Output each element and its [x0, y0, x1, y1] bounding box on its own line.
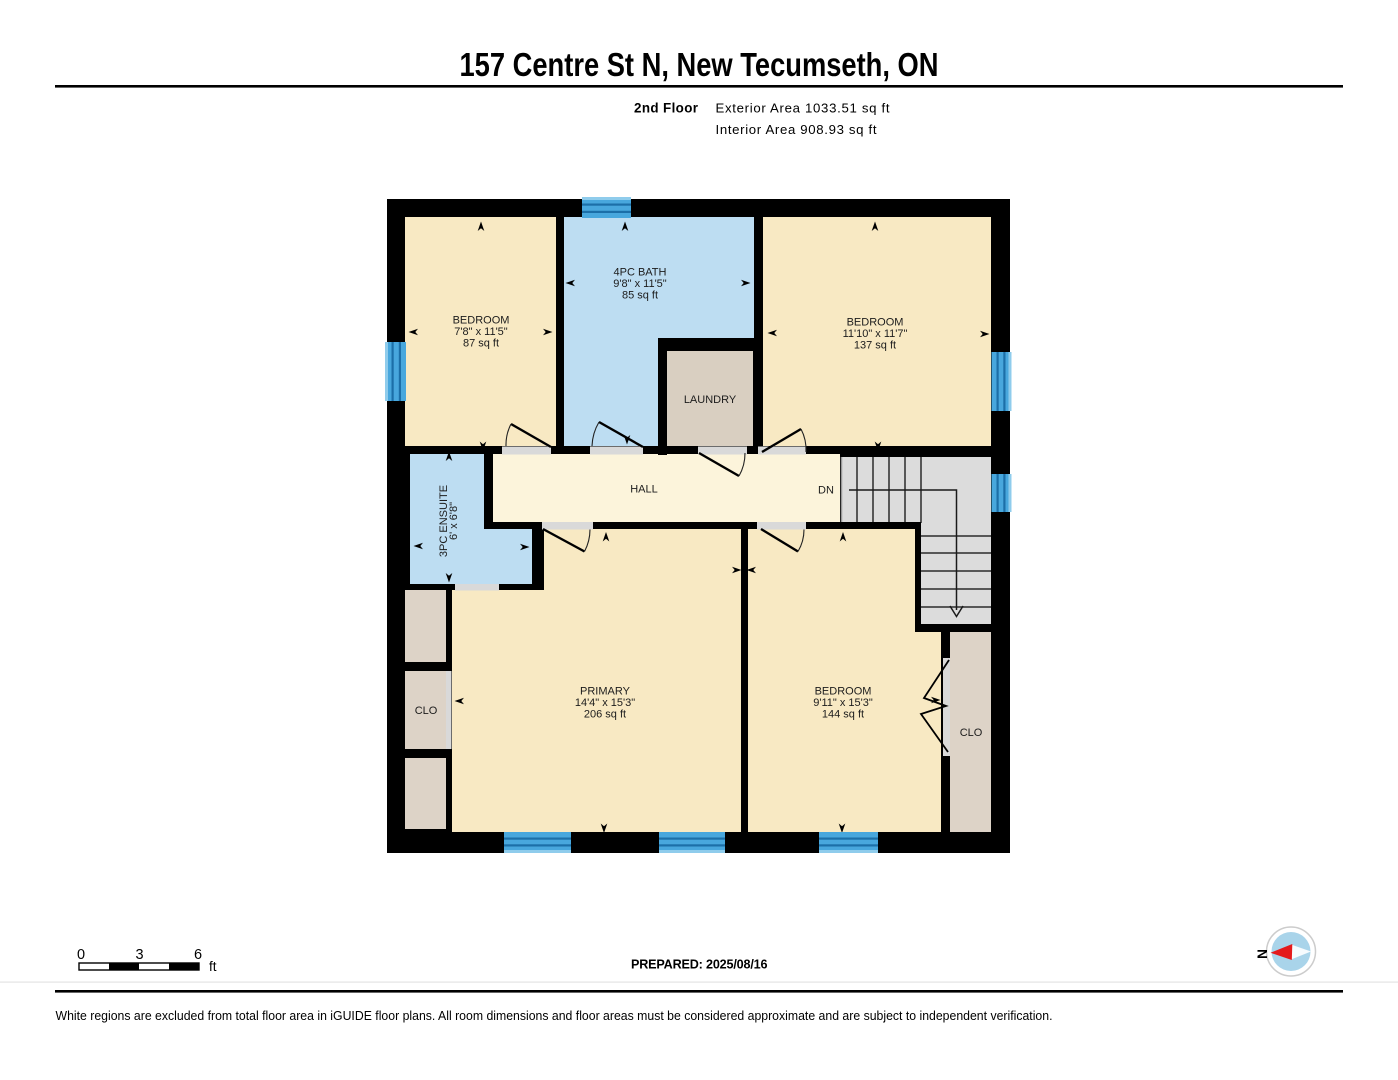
- svg-text:6' x 6'8": 6' x 6'8": [448, 502, 460, 540]
- svg-text:2nd Floor: 2nd Floor: [634, 101, 699, 116]
- svg-text:N: N: [1255, 949, 1270, 959]
- svg-text:CLO: CLO: [415, 705, 438, 717]
- svg-text:PRIMARY: PRIMARY: [580, 686, 631, 698]
- svg-text:CLO: CLO: [960, 727, 983, 739]
- svg-text:7'8" x 11'5": 7'8" x 11'5": [454, 326, 507, 338]
- svg-text:BEDROOM: BEDROOM: [847, 317, 904, 329]
- svg-text:4PC BATH: 4PC BATH: [614, 267, 667, 279]
- svg-text:87 sq ft: 87 sq ft: [463, 338, 499, 350]
- svg-text:11'10" x 11'7": 11'10" x 11'7": [843, 328, 908, 340]
- svg-text:PREPARED: 2025/08/16: PREPARED: 2025/08/16: [631, 958, 768, 972]
- svg-text:9'11" x 15'3": 9'11" x 15'3": [813, 697, 873, 709]
- svg-text:Exterior Area 1033.51 sq ft: Exterior Area 1033.51 sq ft: [716, 101, 890, 116]
- svg-text:BEDROOM: BEDROOM: [453, 315, 510, 327]
- svg-text:137 sq ft: 137 sq ft: [854, 340, 896, 352]
- svg-text:3: 3: [135, 947, 143, 963]
- svg-text:White regions are excluded fro: White regions are excluded from total fl…: [56, 1009, 1053, 1023]
- svg-text:ft: ft: [209, 959, 217, 974]
- svg-text:0: 0: [77, 947, 85, 963]
- svg-text:LAUNDRY: LAUNDRY: [684, 394, 737, 406]
- svg-text:206 sq ft: 206 sq ft: [584, 709, 626, 721]
- svg-text:157 Centre St N, New Tecumseth: 157 Centre St N, New Tecumseth, ON: [460, 46, 939, 83]
- svg-text:BEDROOM: BEDROOM: [815, 686, 872, 698]
- svg-text:DN: DN: [818, 485, 834, 497]
- svg-text:85 sq ft: 85 sq ft: [622, 290, 658, 302]
- svg-text:14'4" x 15'3": 14'4" x 15'3": [575, 697, 635, 709]
- svg-text:6: 6: [194, 947, 202, 963]
- svg-text:9'8" x 11'5": 9'8" x 11'5": [613, 278, 666, 290]
- svg-text:HALL: HALL: [630, 484, 658, 496]
- svg-text:Interior Area 908.93 sq ft: Interior Area 908.93 sq ft: [716, 122, 877, 137]
- svg-text:144 sq ft: 144 sq ft: [822, 709, 864, 721]
